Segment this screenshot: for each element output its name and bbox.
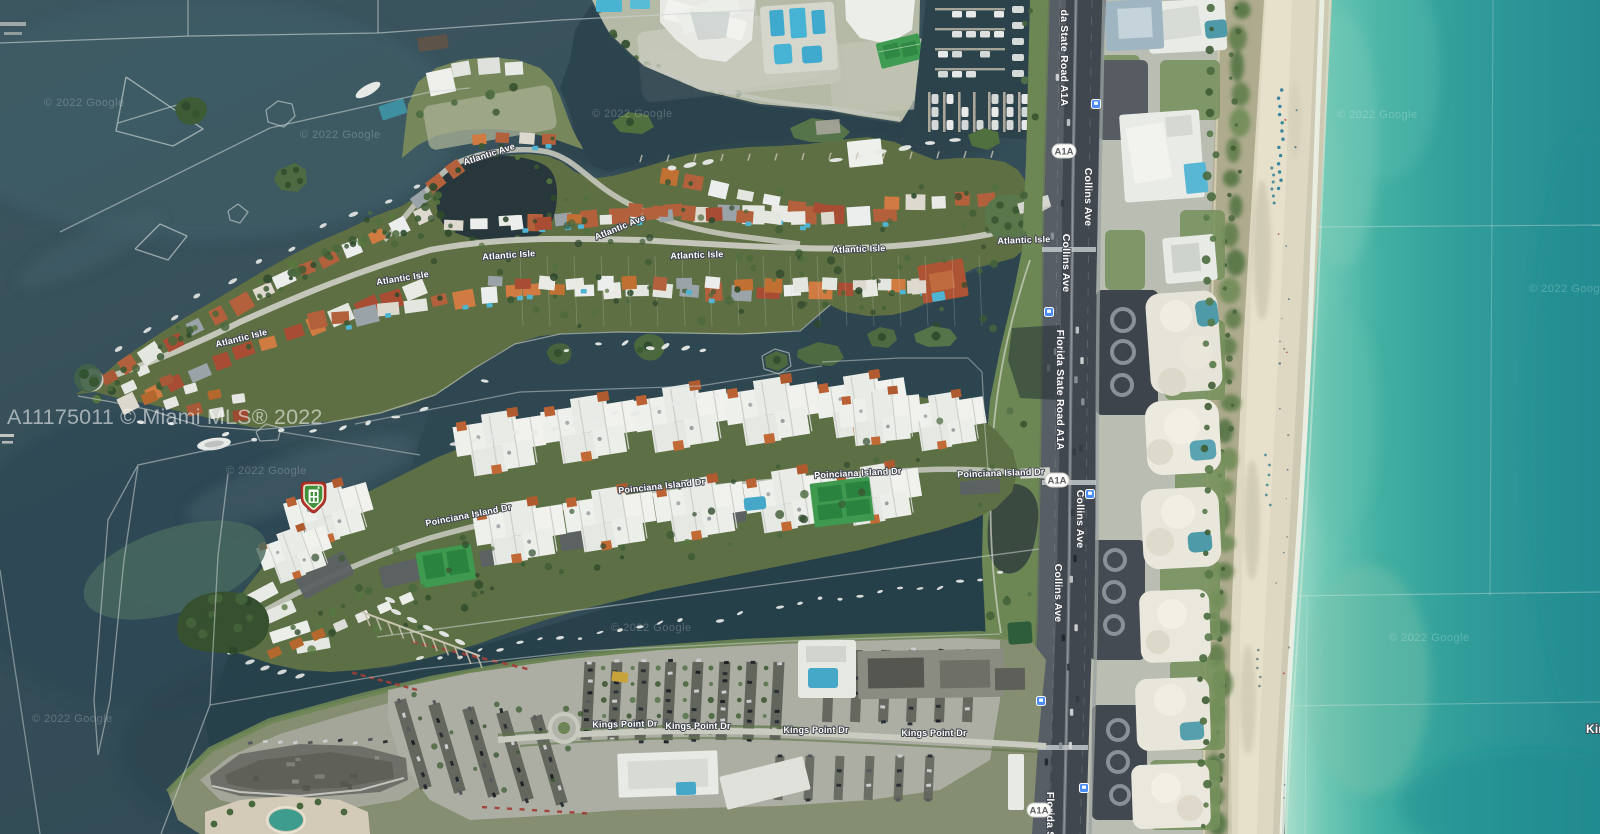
svg-text:Kings Point Dr: Kings Point Dr [901,728,967,738]
svg-text:© 2022 Google: © 2022 Google [44,97,125,109]
svg-text:© 2022 Google: © 2022 Google [300,129,381,141]
svg-text:© 2022 Google: © 2022 Google [226,465,307,477]
svg-text:A11175011 © Miami MLS® 2022: A11175011 © Miami MLS® 2022 [7,405,323,429]
svg-text:© 2022 Google: © 2022 Google [32,713,113,725]
svg-text:Kings Point Dr: Kings Point Dr [665,721,731,731]
svg-text:© 2022 Google: © 2022 Google [1389,632,1470,644]
svg-text:© 2022 Google: © 2022 Google [592,108,673,120]
svg-text:Kin: Kin [1586,722,1600,736]
svg-text:da State Road A1A: da State Road A1A [1058,10,1070,107]
svg-text:Florida State Road A1A: Florida State Road A1A [1054,330,1066,451]
svg-text:Atlantic Isle: Atlantic Isle [670,249,723,261]
svg-text:© 2022 Google: © 2022 Google [1337,109,1418,121]
svg-text:Kings Point Dr: Kings Point Dr [592,718,658,729]
svg-text:A1A: A1A [1047,476,1066,487]
svg-text:A1A: A1A [1054,147,1073,158]
svg-text:Atlantic Isle: Atlantic Isle [997,234,1050,246]
svg-text:A1A: A1A [1029,806,1048,817]
svg-text:Atlantic Isle: Atlantic Isle [832,243,885,255]
svg-text:Collins Ave: Collins Ave [1074,490,1086,549]
svg-text:Kings Point Dr: Kings Point Dr [783,725,849,735]
svg-text:Collins Ave: Collins Ave [1082,168,1094,227]
svg-text:Collins Ave: Collins Ave [1052,564,1064,623]
svg-text:Collins Ave: Collins Ave [1060,234,1072,293]
svg-text:© 2022 Google: © 2022 Google [611,622,692,634]
svg-text:© 2022 Google: © 2022 Google [1529,283,1600,295]
